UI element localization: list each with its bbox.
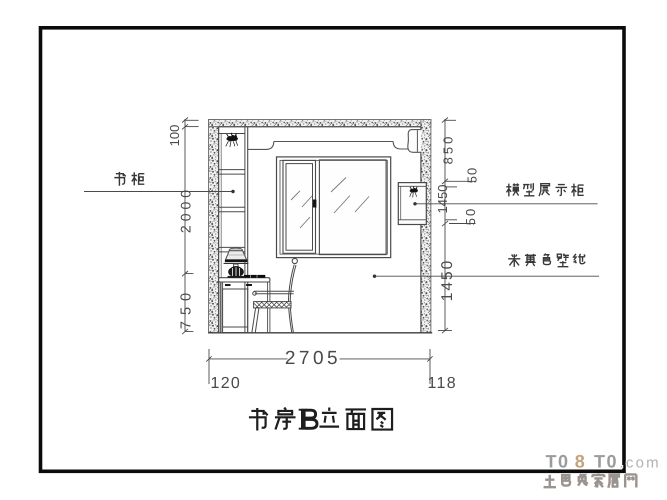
svg-text:118: 118 bbox=[428, 375, 457, 392]
svg-text:8: 8 bbox=[575, 452, 585, 472]
svg-text:2705: 2705 bbox=[285, 348, 341, 369]
svg-text:50: 50 bbox=[465, 167, 480, 183]
svg-text:T0: T0 bbox=[546, 452, 570, 472]
svg-text:.com: .com bbox=[620, 455, 661, 472]
svg-text:T0: T0 bbox=[594, 452, 618, 472]
svg-text:1450: 1450 bbox=[439, 259, 456, 301]
svg-text:750: 750 bbox=[179, 287, 195, 329]
svg-text:120: 120 bbox=[211, 375, 242, 392]
svg-text:50: 50 bbox=[463, 207, 478, 225]
svg-text:2000: 2000 bbox=[178, 186, 194, 233]
svg-text:1450: 1450 bbox=[435, 185, 450, 214]
svg-text:100: 100 bbox=[167, 125, 182, 147]
svg-text:850: 850 bbox=[441, 134, 456, 165]
